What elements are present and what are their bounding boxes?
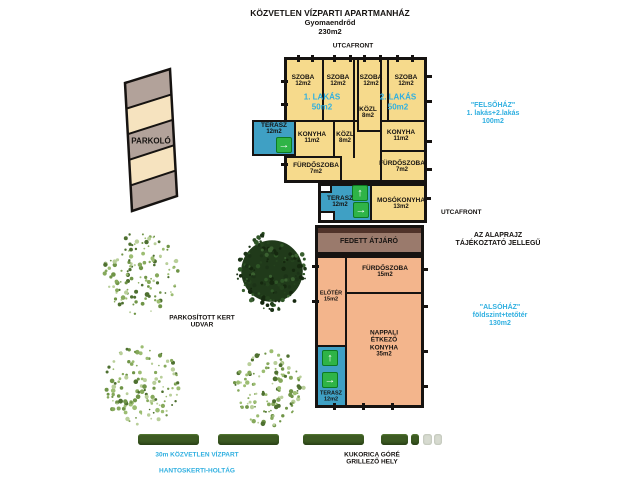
corncrib-label: KUKORICA GÓRÉ GRILLEZŐ HELY (344, 452, 400, 467)
room-label-szoba-3: SZOBA12m2 (360, 74, 383, 88)
window-mark (391, 403, 394, 410)
streetfront-label-right: UTCAFRONT (441, 209, 481, 216)
hedge (303, 434, 364, 445)
room-label-szoba-4: SZOBA12m2 (395, 74, 418, 88)
room-label-furdoszoba-right: FÜRDŐSZOBA7m2 (379, 160, 425, 174)
hedge (381, 434, 408, 445)
passage-shadow (318, 228, 421, 233)
room-label-terasz-middle: TERASZ12m2 (327, 195, 353, 209)
streetfront-label-top: UTCAFRONT (333, 42, 373, 49)
room-label-eloter: ELŐTÉR15m2 (320, 291, 342, 304)
window-mark (421, 385, 428, 388)
felsohaz-annotation: "FELSŐHÁZ" 1. lakás+2.lakás 100m2 (467, 102, 520, 126)
room-label-kozl-left: KÖZL8m2 (336, 131, 354, 145)
window-mark (281, 103, 288, 106)
hedge-light (434, 434, 442, 445)
room-label-konyha-left: KONYHA11m2 (298, 131, 326, 145)
window-mark (425, 75, 432, 78)
entrance-arrow: ↑ (322, 350, 338, 366)
tree-light-3 (233, 349, 306, 427)
window-mark (424, 197, 431, 200)
hedge-light (423, 434, 432, 445)
terrace-notch-bottom (321, 211, 335, 220)
floor-plan-canvas: KÖZVETLEN VÍZPARTI APARTMANHÁZ Gyomaendr… (0, 0, 640, 480)
window-mark (281, 80, 288, 83)
tree-light-2 (105, 345, 181, 425)
entrance-arrow: → (353, 202, 369, 218)
passage-label: FEDETT ÁTJÁRÓ (340, 238, 398, 246)
arrow-right-icon: → (279, 140, 290, 151)
room-label-szoba-1: SZOBA12m2 (292, 74, 315, 88)
window-mark (333, 403, 336, 410)
window-mark (421, 305, 428, 308)
room-label-szoba-2: SZOBA12m2 (327, 74, 350, 88)
window-mark (281, 163, 288, 166)
hedge (411, 434, 419, 445)
arrow-up-icon: ↑ (357, 188, 363, 199)
tree-light-1 (103, 233, 180, 315)
room-label-mosokonyha: MOSÓKONYHA13m2 (377, 197, 425, 211)
window-mark (425, 168, 432, 171)
window-mark (421, 268, 428, 271)
room-label-konyha-right: KONYHA11m2 (387, 129, 415, 143)
arrow-right-icon: → (325, 375, 336, 386)
parking-label: PARKOLÓ (131, 136, 170, 145)
garden-label: PARKOSÍTOTT KERT UDVAR (169, 315, 234, 330)
window-mark (349, 55, 352, 62)
arrow-right-icon: → (356, 205, 367, 216)
apartment-2-label: 2. LAKÁS50m2 (380, 93, 416, 114)
window-mark (312, 300, 319, 303)
window-mark (312, 265, 319, 268)
room-label-kozl-center: KÖZL8m2 (359, 106, 377, 120)
window-mark (411, 55, 414, 62)
window-mark (297, 55, 300, 62)
hedge (138, 434, 199, 445)
room-label-terasz-left: TERASZ12m2 (261, 122, 287, 136)
entrance-arrow: ↑ (352, 185, 368, 201)
window-mark (311, 55, 314, 62)
entrance-arrow: → (322, 372, 338, 388)
window-mark (425, 100, 432, 103)
window-mark (333, 55, 336, 62)
waterfront-label: 30m KÖZVETLEN VÍZPART (155, 451, 238, 458)
terrace-notch-top (321, 186, 332, 193)
room-label-furdoszoba-left: FÜRDŐSZOBA7m2 (293, 162, 339, 176)
window-mark (425, 140, 432, 143)
backwater-label: HANTOSKERTI-HOLTÁG (159, 467, 235, 474)
window-mark (379, 55, 382, 62)
window-mark (363, 55, 366, 62)
window-mark (396, 55, 399, 62)
disclaimer-note: AZ ALAPRAJZ TÁJÉKOZTATÓ JELLEGŰ (456, 232, 541, 248)
window-mark (421, 350, 428, 353)
entrance-arrow: → (276, 137, 292, 153)
hedge (218, 434, 279, 445)
alsohaz-annotation: "ALSÓHÁZ" földszint+tetőtér 130m2 (473, 304, 528, 328)
window-mark (362, 403, 365, 410)
room-label-nappali: NAPPALI ÉTKEZŐ KONYHA35m2 (370, 329, 398, 358)
page-subtitle-city: Gyomaendrőd (25, 18, 635, 27)
room-label-furdoszoba-lower: FÜRDŐSZOBA15m2 (362, 265, 408, 279)
tree-dark (236, 232, 307, 312)
room-label-terasz-lower: TERASZ12m2 (320, 391, 342, 404)
page-subtitle-area: 230m2 (25, 27, 635, 36)
page-title: KÖZVETLEN VÍZPARTI APARTMANHÁZ (25, 8, 635, 18)
apartment-1-label: 1. LAKÁS50m2 (304, 93, 340, 114)
arrow-up-icon: ↑ (327, 353, 333, 364)
